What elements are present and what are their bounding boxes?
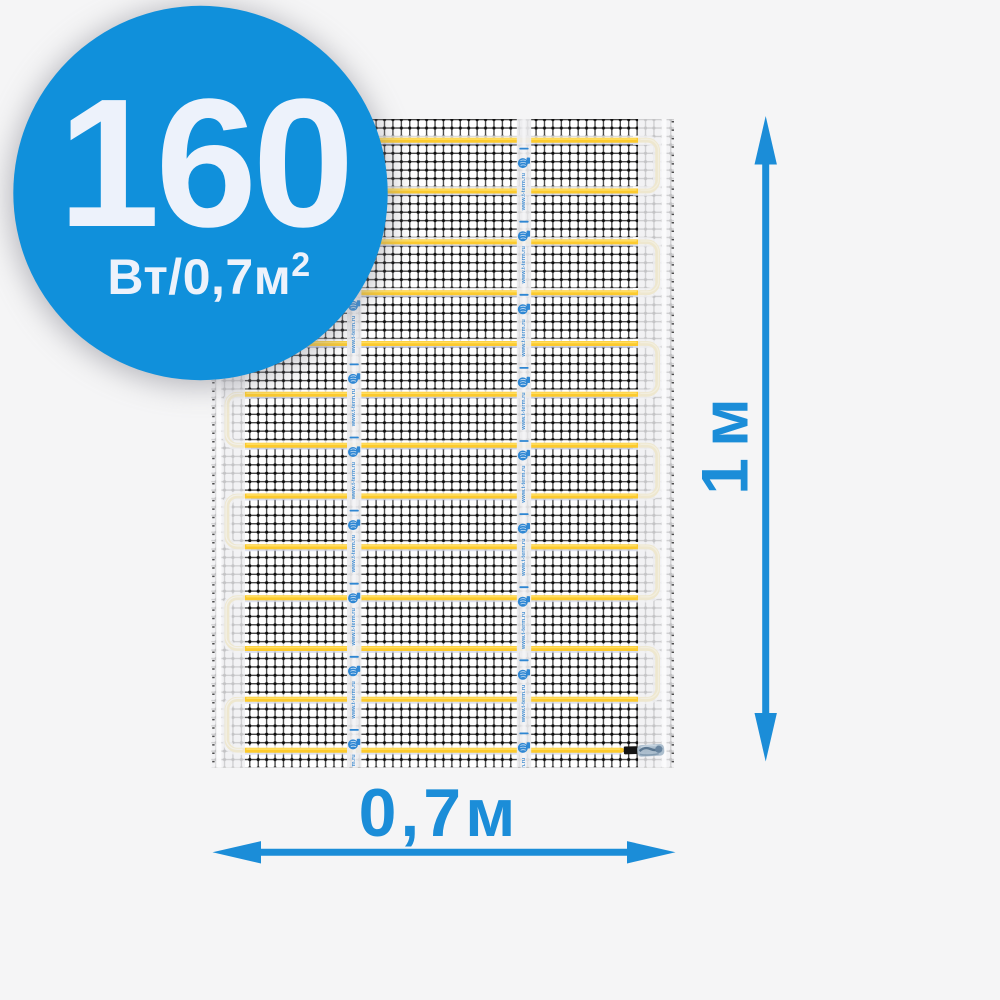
- svg-text:160: 160: [58, 60, 350, 265]
- svg-text:0,7м: 0,7м: [359, 775, 520, 851]
- svg-text:1м: 1м: [688, 387, 762, 495]
- svg-text:Вт/0,7м2: Вт/0,7м2: [107, 246, 310, 305]
